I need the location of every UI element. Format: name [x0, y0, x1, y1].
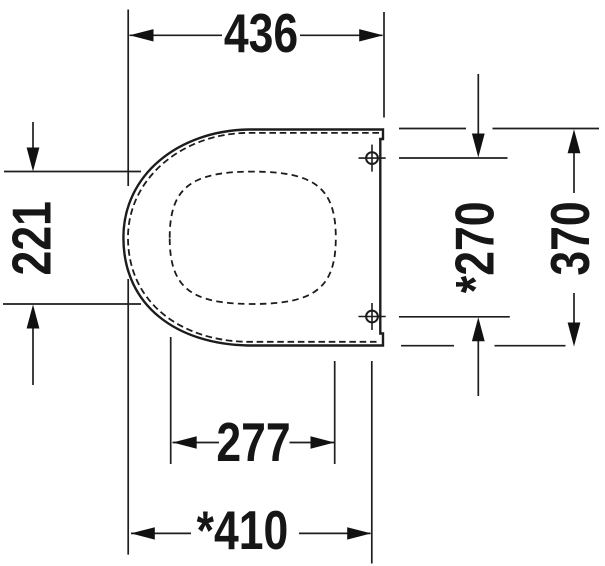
svg-text:277: 277 [216, 412, 290, 474]
svg-text:*270: *270 [444, 201, 506, 293]
svg-text:221: 221 [1, 201, 63, 275]
svg-text:436: 436 [224, 3, 298, 65]
svg-text:370: 370 [540, 201, 602, 275]
svg-text:*410: *410 [197, 500, 289, 562]
